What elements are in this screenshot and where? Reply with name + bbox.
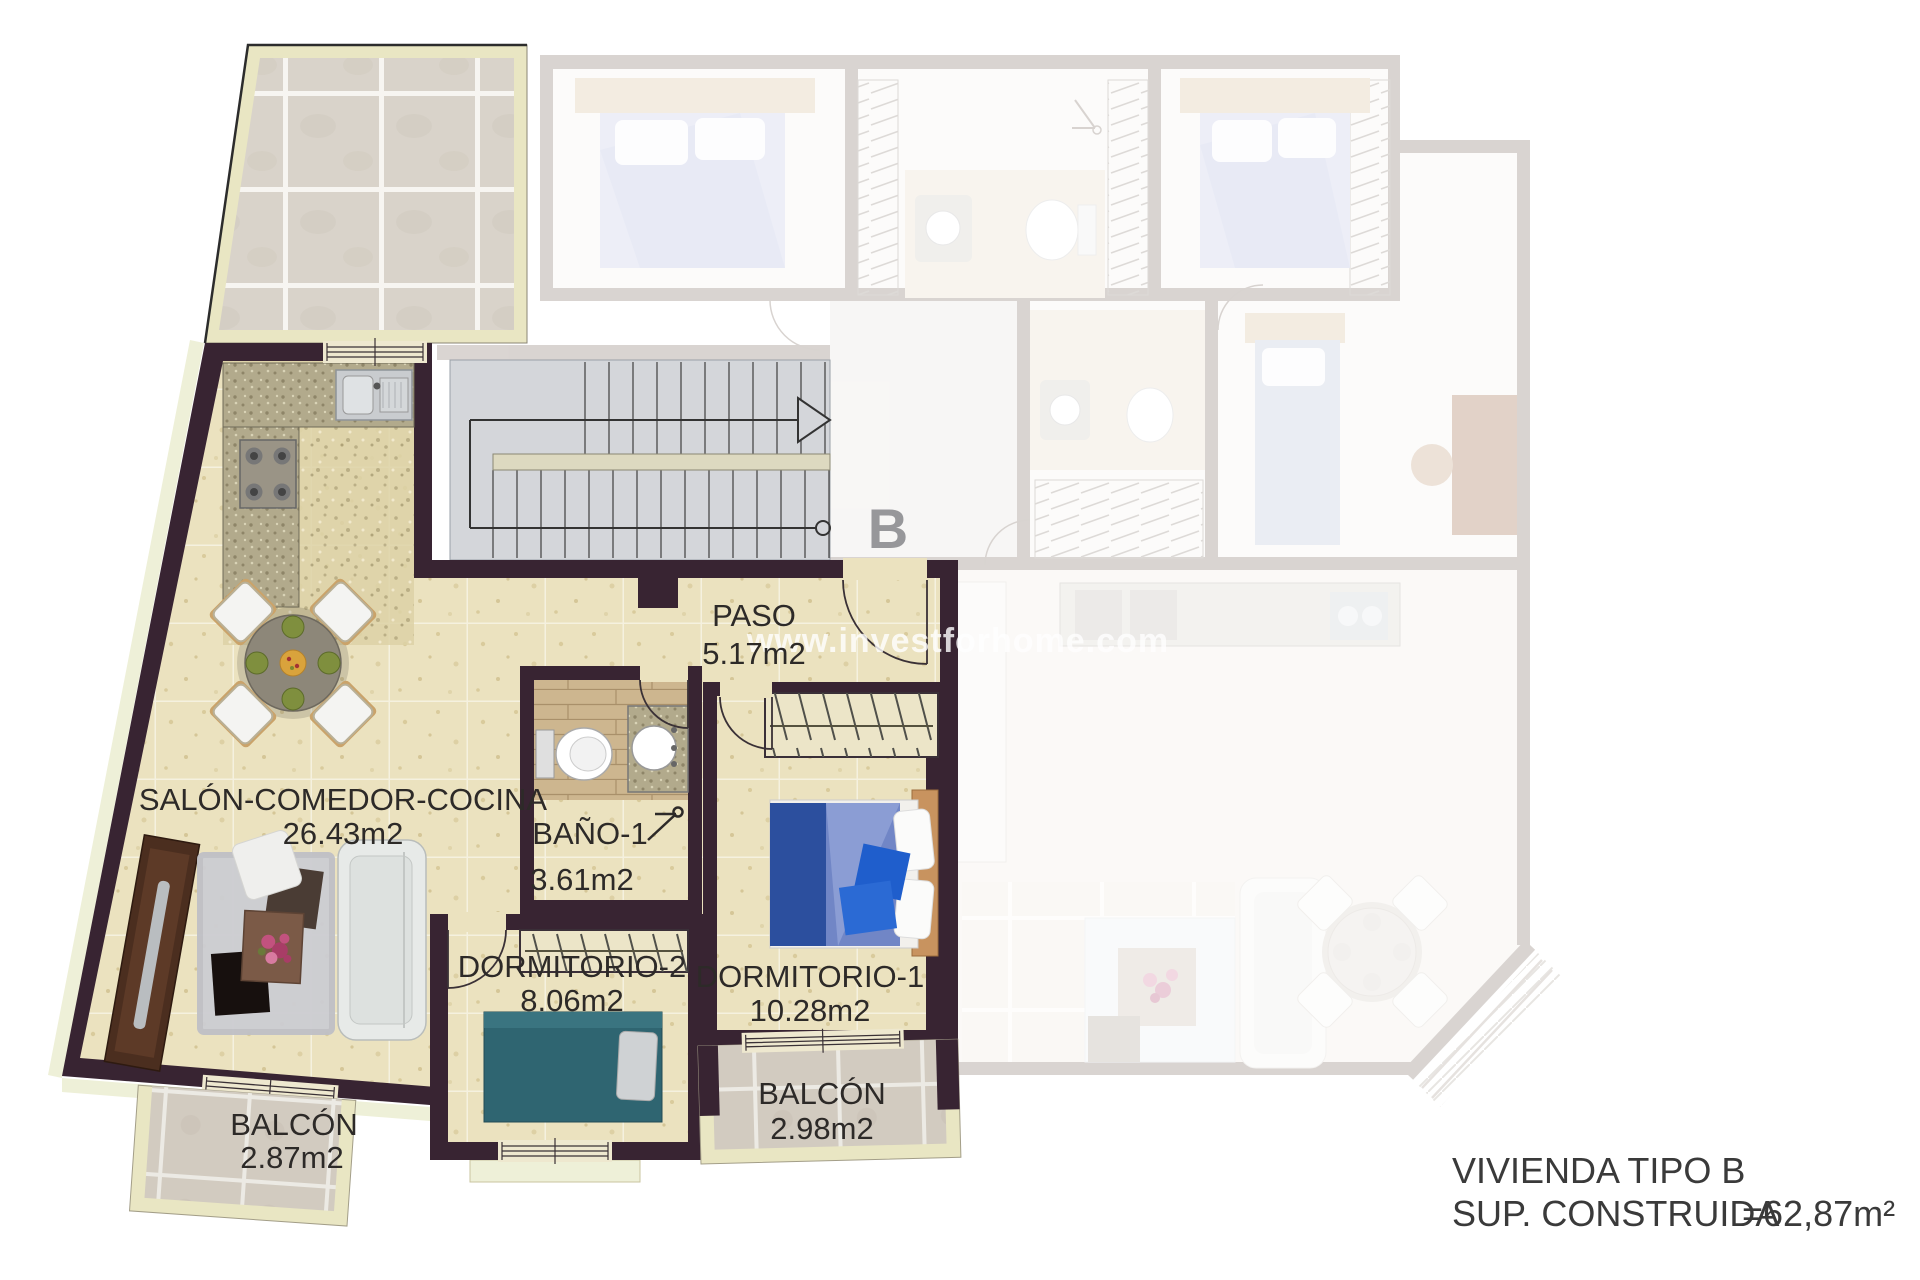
- label-dorm1-name: DORMITORIO-1: [696, 959, 925, 994]
- label-bano1-name: BAÑO-1: [532, 816, 647, 851]
- stairwell: [450, 360, 830, 560]
- label-salon-name: SALÓN-COMEDOR-COCINA: [139, 782, 548, 817]
- title-block: VIVIENDA TIPO B SUP. CONSTRUIDA =62,87m²: [1452, 1150, 1895, 1234]
- kitchen-window: [323, 338, 427, 366]
- label-paso-area: 5.17m2: [702, 636, 805, 671]
- label-balcon2-area: 2.98m2: [770, 1111, 873, 1146]
- double-bed-icon: [770, 790, 938, 956]
- label-balcon2-name: BALCÓN: [758, 1076, 885, 1111]
- kitchen-sink-icon: [336, 370, 412, 420]
- floor-plan-svg: B: [0, 0, 1920, 1280]
- label-paso-name: PASO: [712, 598, 796, 633]
- toilet-icon: [536, 728, 612, 780]
- label-balcon1-name: BALCÓN: [230, 1107, 357, 1142]
- faded-bed-2: [1180, 78, 1370, 268]
- floor-plan-page: B: [0, 0, 1920, 1280]
- label-dorm2-name: DORMITORIO-2: [458, 949, 687, 984]
- washbasin-icon: [628, 706, 688, 792]
- label-salon-area: 26.43m2: [283, 816, 404, 851]
- stairwell-letter: B: [868, 497, 908, 560]
- cooktop-icon: [240, 440, 296, 508]
- wardrobe-icon-dorm1: [765, 693, 938, 757]
- label-balcon1-area: 2.87m2: [240, 1140, 343, 1175]
- sofa-icon: [338, 840, 426, 1040]
- single-bed-icon: [484, 1012, 662, 1122]
- title-line1: VIVIENDA TIPO B: [1452, 1150, 1745, 1191]
- faded-single-bed: [1245, 313, 1345, 545]
- title-value: =62,87m²: [1742, 1193, 1895, 1234]
- faded-bed-1: [575, 78, 815, 268]
- coffee-table-icon: [241, 911, 304, 984]
- label-dorm2-area: 8.06m2: [520, 983, 623, 1018]
- title-line2: SUP. CONSTRUIDA: [1452, 1193, 1779, 1234]
- stair-landing-strip: [493, 454, 830, 470]
- label-bano1-area: 3.61m2: [530, 862, 633, 897]
- label-dorm1-area: 10.28m2: [750, 993, 871, 1028]
- terrace: [205, 45, 527, 343]
- watermark: www.investforhome.com: [746, 622, 1169, 660]
- faded-bathroom-centre: [1030, 310, 1205, 470]
- dorm2-window: [498, 1138, 612, 1164]
